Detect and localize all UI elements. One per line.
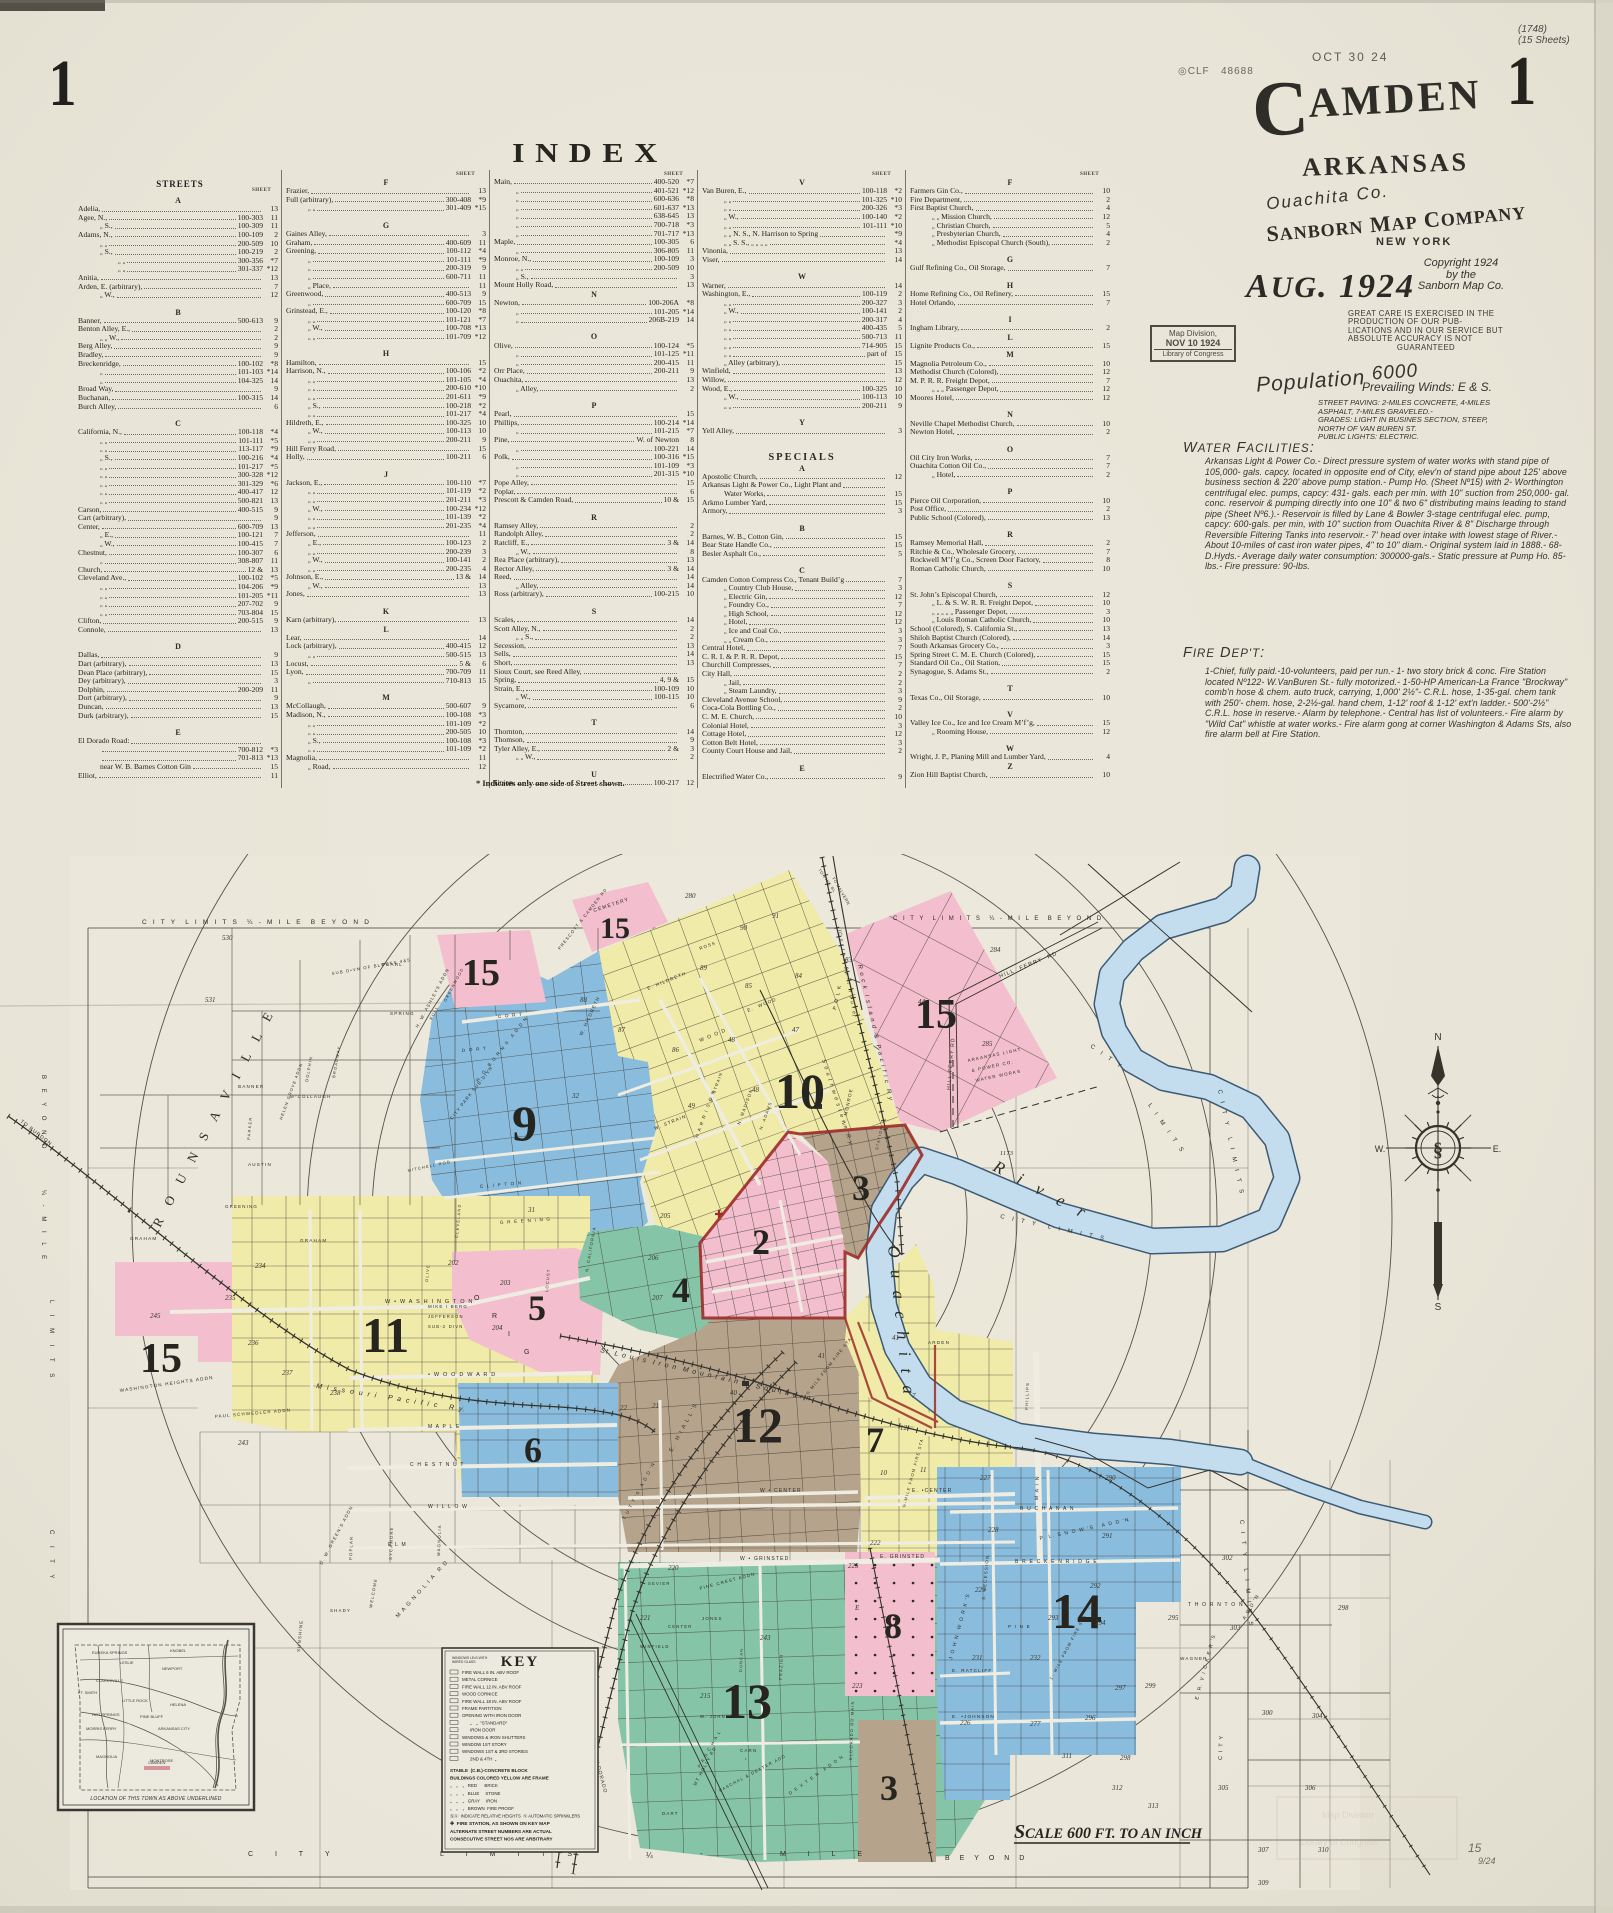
- svg-text:1173: 1173: [1000, 1151, 1014, 1157]
- svg-text:307: 307: [1257, 1846, 1269, 1854]
- svg-text:WINFIELD: WINFIELD: [640, 1644, 670, 1649]
- svg-text:TO BURDON: TO BURDON: [19, 1119, 53, 1148]
- svg-text:3: 3: [880, 1768, 898, 1808]
- svg-text:WINDOWS & IRON SHUTTERS: WINDOWS & IRON SHUTTERS: [462, 1735, 525, 1740]
- svg-text:C I T Y L I M I T S ¼ - M I: C I T Y L I M I T S ¼ - M I L E B E Y O …: [142, 919, 371, 926]
- svg-text:284: 284: [990, 946, 1001, 954]
- svg-text:LITTLE ROCK: LITTLE ROCK: [122, 1698, 148, 1703]
- svg-text:-: -: [700, 1849, 704, 1858]
- svg-text:220: 220: [668, 1564, 679, 1572]
- svg-text:91: 91: [772, 912, 779, 920]
- svg-text:„ „ „ BLUE STONE: „ „ „ BLUE STONE: [450, 1791, 500, 1796]
- svg-text:2ND & 4TH „: 2ND & 4TH „: [470, 1756, 497, 1761]
- svg-text:207: 207: [652, 1294, 663, 1302]
- svg-text:MIKE I BERG: MIKE I BERG: [428, 1304, 468, 1309]
- svg-text:Ⓢⓚ INDICATE RELATIVE HEIGHTS: Ⓢⓚ INDICATE RELATIVE HEIGHTS Ⓥ AUTOMATIC…: [450, 1813, 580, 1820]
- svg-text:EUREKA SPRINGS: EUREKA SPRINGS: [92, 1650, 128, 1655]
- svg-text:MºCOLLAUGH: MºCOLLAUGH: [290, 1094, 331, 1099]
- svg-text:243: 243: [238, 1439, 249, 1447]
- svg-text:JONES: JONES: [702, 1616, 723, 1621]
- svg-text:„ „ „ BROWN FIRE PROO: „ „ „ BROWN FIRE PROOF: [450, 1806, 514, 1811]
- svg-text:W I L L O W: W I L L O W: [428, 1504, 468, 1510]
- svg-text:88: 88: [580, 996, 588, 1004]
- svg-text:DUNCAN: DUNCAN: [738, 1648, 744, 1672]
- svg-text:LOCATION OF THIS TOWN AS ABOVE: LOCATION OF THIS TOWN AS ABOVE UNDERLINE…: [90, 1796, 221, 1802]
- svg-text:232: 232: [1030, 1654, 1041, 1662]
- svg-text:231: 231: [972, 1654, 983, 1662]
- svg-text:313: 313: [1147, 1802, 1159, 1810]
- svg-text:E. RATCLIFF: E. RATCLIFF: [952, 1668, 992, 1673]
- svg-text:OPENING WITH IRON DOOR: OPENING WITH IRON DOOR: [462, 1713, 521, 1718]
- svg-text:90: 90: [740, 924, 748, 932]
- svg-text:SUB-2 DIVN: SUB-2 DIVN: [428, 1324, 464, 1329]
- svg-text:236: 236: [248, 1339, 259, 1347]
- svg-text:87: 87: [618, 1026, 626, 1034]
- svg-text:225: 225: [848, 1562, 859, 1570]
- svg-text:290: 290: [1105, 1474, 1116, 1482]
- svg-text:298: 298: [1120, 1754, 1131, 1762]
- svg-text:W • CENTER: W • CENTER: [760, 1488, 802, 1494]
- svg-text:297: 297: [1115, 1684, 1126, 1692]
- svg-text:32: 32: [571, 1092, 580, 1100]
- svg-text:47: 47: [792, 1026, 800, 1034]
- svg-text:89: 89: [700, 964, 708, 972]
- svg-text:Map Division: Map Division: [1322, 1810, 1374, 1820]
- svg-text:292: 292: [1090, 1582, 1101, 1590]
- svg-text:280: 280: [685, 892, 696, 900]
- svg-text:84: 84: [795, 972, 803, 980]
- svg-text:3: 3: [852, 1168, 870, 1208]
- svg-text:O: O: [474, 1295, 481, 1302]
- svg-text:¼ - M I L E: ¼ - M I L E: [40, 1190, 46, 1263]
- svg-text:BANNER: BANNER: [238, 1084, 264, 1089]
- svg-text:C I T Y: C I T Y: [248, 1851, 336, 1858]
- svg-text:FIRE WALL 6 IN. ABV ROOF: FIRE WALL 6 IN. ABV ROOF: [462, 1670, 519, 1675]
- svg-text:WIRED GLASS: WIRED GLASS: [452, 1660, 476, 1664]
- svg-text:85: 85: [745, 982, 753, 990]
- svg-text:E.: E.: [1493, 1144, 1502, 1154]
- svg-text:C H E S T N U T: C H E S T N U T: [410, 1462, 465, 1468]
- svg-text:C I T Y: C I T Y: [48, 1530, 54, 1583]
- svg-text:NEWPORT: NEWPORT: [162, 1666, 183, 1671]
- svg-text:202: 202: [448, 1259, 459, 1267]
- svg-text:2: 2: [752, 1222, 770, 1262]
- svg-text:234: 234: [255, 1262, 266, 1270]
- svg-text:PINE BLUFF: PINE BLUFF: [140, 1714, 164, 1719]
- svg-text:W • GRINSTED: W • GRINSTED: [740, 1556, 789, 1562]
- svg-text:MORRIS FERRY: MORRIS FERRY: [86, 1726, 117, 1731]
- svg-text:P I N E: P I N E: [1008, 1624, 1031, 1629]
- svg-text:„ „ "STANDARD": „ „ "STANDARD": [470, 1720, 508, 1725]
- svg-text:294: 294: [1095, 1619, 1106, 1627]
- svg-text:✚ FIRE STATION, AS SHOWN ON K: ✚ FIRE STATION, AS SHOWN ON KEY MAP: [450, 1821, 551, 1827]
- svg-text:E. •CENTER: E. •CENTER: [912, 1488, 952, 1494]
- svg-text:530: 530: [222, 934, 233, 942]
- svg-text:ARDEN: ARDEN: [928, 1340, 950, 1345]
- svg-text:302: 302: [1221, 1554, 1233, 1562]
- svg-text:HOT SPRINGS: HOT SPRINGS: [92, 1712, 120, 1717]
- svg-text:285: 285: [982, 1040, 993, 1048]
- svg-text:4: 4: [672, 1270, 690, 1310]
- svg-text:FT. SMITH: FT. SMITH: [78, 1690, 97, 1695]
- svg-text:48: 48: [728, 1036, 736, 1044]
- svg-text:310: 310: [1317, 1846, 1329, 1854]
- svg-text:WOOD CORNICE: WOOD CORNICE: [462, 1692, 498, 1697]
- svg-text:12: 12: [900, 1424, 908, 1432]
- svg-text:21: 21: [652, 1402, 659, 1410]
- svg-text:E. •JOHNSON: E. •JOHNSON: [952, 1714, 995, 1719]
- svg-text:204: 204: [492, 1324, 503, 1332]
- svg-text:N: N: [1434, 1032, 1441, 1043]
- svg-text:9/24: 9/24: [1478, 1856, 1496, 1866]
- svg-text:SEVIER: SEVIER: [648, 1581, 671, 1586]
- svg-text:41: 41: [818, 1352, 825, 1360]
- svg-text:GREENING: GREENING: [225, 1204, 258, 1209]
- svg-text:49: 49: [688, 1102, 696, 1110]
- svg-text:311: 311: [1061, 1752, 1072, 1760]
- svg-text:CARN: CARN: [740, 1748, 757, 1753]
- svg-text:15: 15: [140, 1336, 182, 1382]
- svg-text:T H O R N T O N: T H O R N T O N: [1188, 1602, 1244, 1608]
- svg-text:GRAHAM: GRAHAM: [130, 1236, 157, 1241]
- svg-text:296: 296: [1085, 1714, 1096, 1722]
- svg-text:• W O O D W A R D: • W O O D W A R D: [428, 1372, 496, 1378]
- svg-text:PHILLIPS: PHILLIPS: [1024, 1382, 1030, 1410]
- svg-text:FRAZIER: FRAZIER: [778, 1654, 784, 1680]
- svg-text:SPRING: SPRING: [390, 1011, 415, 1016]
- svg-text:KEY: KEY: [501, 1654, 540, 1670]
- svg-text:Library of Congress: Library of Congress: [1300, 1837, 1379, 1847]
- svg-text:CLARKSVILLE: CLARKSVILLE: [96, 1678, 123, 1683]
- svg-text:E: E: [854, 1604, 860, 1612]
- svg-text:11: 11: [362, 1307, 409, 1363]
- svg-text:FIRE WALL 18 IN. ABV ROOF: FIRE WALL 18 IN. ABV ROOF: [462, 1699, 522, 1704]
- svg-text:298: 298: [1338, 1604, 1349, 1612]
- svg-text:S: S: [1435, 1302, 1442, 1313]
- svg-text:40: 40: [730, 1389, 738, 1397]
- svg-text:FRAME PARTITION: FRAME PARTITION: [462, 1706, 502, 1711]
- svg-text:312: 312: [1111, 1784, 1123, 1792]
- svg-text:KNOBEL: KNOBEL: [170, 1648, 187, 1653]
- svg-text:BUILDINGS COLORED YELLOW ARE F: BUILDINGS COLORED YELLOW ARE FRAME: [450, 1776, 549, 1781]
- svg-text:223: 223: [852, 1682, 863, 1690]
- svg-text:309: 309: [1257, 1879, 1269, 1887]
- svg-text:WINDOW 1ST STORY: WINDOW 1ST STORY: [462, 1742, 507, 1747]
- svg-text:•: •: [745, 1756, 748, 1761]
- svg-text:POPLAR: POPLAR: [348, 1536, 354, 1560]
- svg-text:SHADY: SHADY: [330, 1608, 351, 1613]
- svg-text:222: 222: [870, 1539, 881, 1547]
- svg-text:B R E C K E N R I D G E: B R E C K E N R I D G E: [1015, 1559, 1098, 1565]
- svg-text:13: 13: [722, 1673, 772, 1729]
- svg-text:15: 15: [600, 912, 630, 945]
- svg-text:10: 10: [880, 1469, 888, 1477]
- svg-text:531: 531: [205, 996, 216, 1004]
- svg-text:215: 215: [700, 1692, 711, 1700]
- svg-text:B U C H A N A N: B U C H A N A N: [1020, 1506, 1075, 1512]
- svg-text:CONSECUTIVE STREET NOS ARE ARB: CONSECUTIVE STREET NOS ARE ARBITRARY: [450, 1836, 553, 1841]
- svg-text:M A I N: M A I N: [1034, 1475, 1041, 1500]
- svg-text:306: 306: [1304, 1784, 1316, 1792]
- svg-text:M I L E: M I L E: [780, 1851, 868, 1858]
- svg-text:HELENA: HELENA: [170, 1702, 186, 1707]
- svg-text:MONTROSE: MONTROSE: [150, 1758, 173, 1763]
- svg-text:METAL CORNICE: METAL CORNICE: [462, 1677, 498, 1682]
- svg-text:243: 243: [760, 1634, 771, 1642]
- svg-text:245: 245: [150, 1312, 161, 1320]
- svg-text:ALTERNATE STREET NUMBERS ARE A: ALTERNATE STREET NUMBERS ARE ACTUAL: [450, 1829, 552, 1834]
- svg-text:300: 300: [1261, 1709, 1273, 1717]
- svg-text:11: 11: [920, 1466, 926, 1474]
- svg-text:W.: W.: [1375, 1144, 1386, 1154]
- svg-text:304: 304: [1311, 1712, 1323, 1720]
- svg-text:E. GRINSTED: E. GRINSTED: [880, 1554, 925, 1560]
- svg-text:¼: ¼: [646, 1851, 655, 1860]
- svg-text:„ „ „ RED BRICK: „ „ „ RED BRICK: [450, 1783, 498, 1788]
- svg-text:221: 221: [640, 1614, 651, 1622]
- svg-text:7: 7: [912, 1392, 916, 1400]
- svg-text:303: 303: [1229, 1624, 1241, 1632]
- svg-text:277: 277: [1030, 1720, 1041, 1728]
- svg-text:293: 293: [1048, 1614, 1059, 1622]
- svg-text:„ „ „ GRAY IRON: „ „ „ GRAY IRON: [450, 1798, 497, 1803]
- svg-text:JEFFERSON: JEFFERSON: [428, 1314, 464, 1319]
- svg-text:FIRE WALL 12 IN. ABV ROOF: FIRE WALL 12 IN. ABV ROOF: [462, 1684, 522, 1689]
- svg-text:299: 299: [1145, 1682, 1156, 1690]
- svg-text:B E Y O N D: B E Y O N D: [945, 1855, 1028, 1862]
- svg-text:10: 10: [775, 1063, 825, 1119]
- svg-text:305: 305: [1217, 1784, 1229, 1792]
- svg-text:STABLE (C.B.)-CONCRETE BLOCK: STABLE (C.B.)-CONCRETE BLOCK: [450, 1768, 528, 1773]
- svg-text:ARKANSAS CITY: ARKANSAS CITY: [158, 1726, 190, 1731]
- svg-text:228: 228: [988, 1526, 999, 1534]
- svg-text:9: 9: [512, 1095, 537, 1151]
- svg-text:W. JOHNSON: W. JOHNSON: [700, 1714, 739, 1719]
- svg-text:C I T Y: C I T Y: [1218, 1735, 1225, 1760]
- svg-text:G: G: [524, 1349, 531, 1356]
- svg-text:L I M I T S: L I M I T S: [48, 1300, 54, 1382]
- svg-text:§: §: [1433, 1139, 1443, 1161]
- svg-text:LESLIE: LESLIE: [120, 1660, 134, 1665]
- svg-text:IRON DOOR: IRON DOOR: [470, 1728, 495, 1733]
- svg-text:206: 206: [648, 1254, 659, 1262]
- svg-text:AUSTIN: AUSTIN: [248, 1162, 272, 1167]
- svg-text:44: 44: [918, 998, 926, 1006]
- svg-text:48: 48: [752, 1086, 760, 1094]
- svg-text:6: 6: [524, 1430, 542, 1470]
- svg-text:41: 41: [892, 1334, 899, 1342]
- svg-text:WINDOWS 1ST & 3RD STORIES: WINDOWS 1ST & 3RD STORIES: [462, 1749, 528, 1754]
- svg-text:226: 226: [960, 1719, 971, 1727]
- svg-text:203: 203: [500, 1279, 511, 1287]
- svg-text:235: 235: [225, 1294, 236, 1302]
- svg-text:R: R: [492, 1313, 498, 1320]
- svg-text:22: 22: [620, 1404, 628, 1412]
- svg-text:12: 12: [733, 1397, 783, 1453]
- svg-text:238: 238: [330, 1389, 341, 1397]
- svg-text:86: 86: [672, 1046, 680, 1054]
- svg-text:C I T Y L I M I T S ¼ - M I: C I T Y L I M I T S ¼ - M I L E B E Y O …: [893, 916, 1103, 922]
- svg-text:237: 237: [282, 1369, 293, 1377]
- svg-text:229: 229: [975, 1586, 986, 1594]
- svg-text:DART: DART: [662, 1811, 679, 1816]
- svg-text:7: 7: [866, 1420, 884, 1460]
- svg-text:83: 83: [845, 956, 853, 964]
- svg-text:8: 8: [884, 1606, 902, 1646]
- svg-text:15: 15: [1468, 1841, 1482, 1855]
- svg-text:CENTER: CENTER: [668, 1624, 692, 1629]
- svg-text:227: 227: [980, 1474, 991, 1482]
- svg-text:M A P L E: M A P L E: [428, 1424, 460, 1430]
- svg-text:205: 205: [660, 1212, 671, 1220]
- svg-text:15: 15: [462, 952, 500, 994]
- svg-text:I: I: [508, 1331, 511, 1338]
- svg-text:5: 5: [528, 1288, 546, 1328]
- svg-text:MAGNOLIA: MAGNOLIA: [96, 1754, 117, 1759]
- svg-text:GRAHAM: GRAHAM: [300, 1238, 327, 1243]
- svg-text:291: 291: [1102, 1532, 1113, 1540]
- svg-text:31: 31: [527, 1206, 535, 1214]
- svg-text:295: 295: [1168, 1614, 1179, 1622]
